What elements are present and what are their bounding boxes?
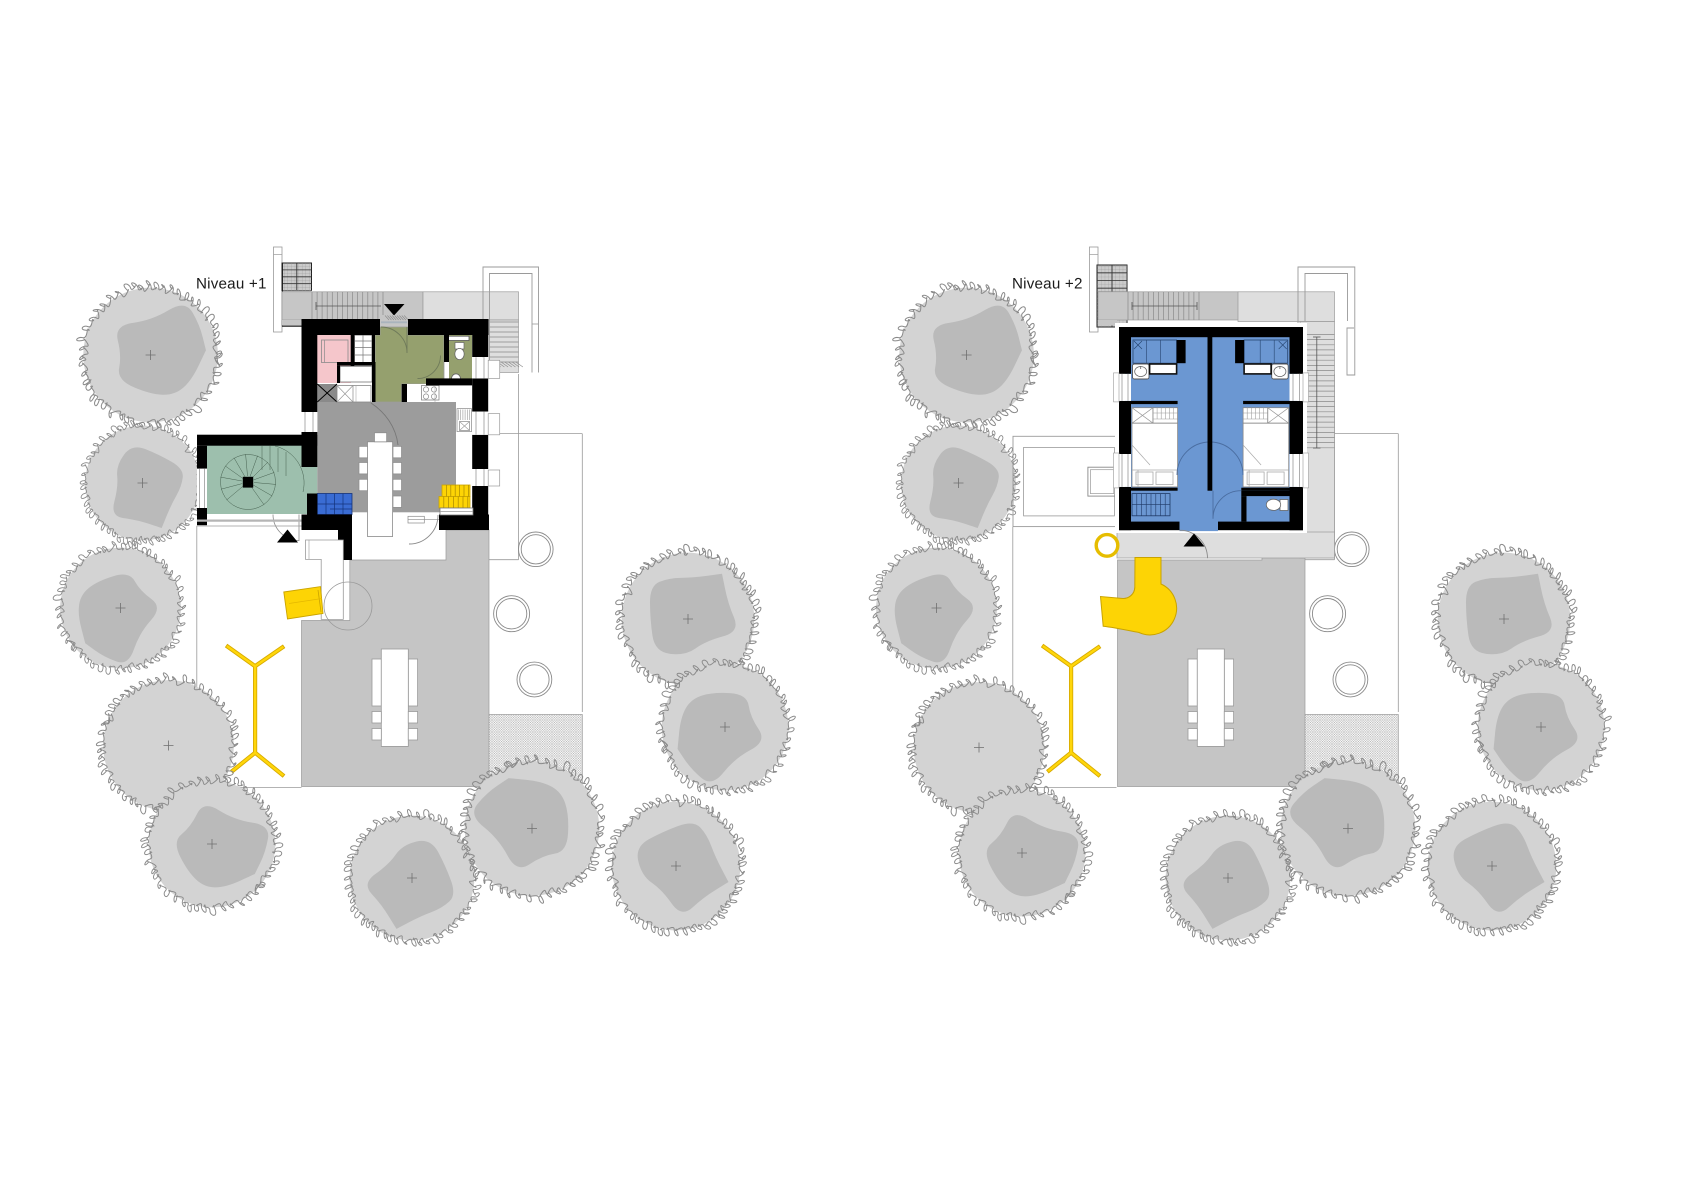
svg-text:Niveau +2: Niveau +2: [1012, 276, 1083, 293]
svg-text:Niveau +1: Niveau +1: [196, 276, 267, 293]
